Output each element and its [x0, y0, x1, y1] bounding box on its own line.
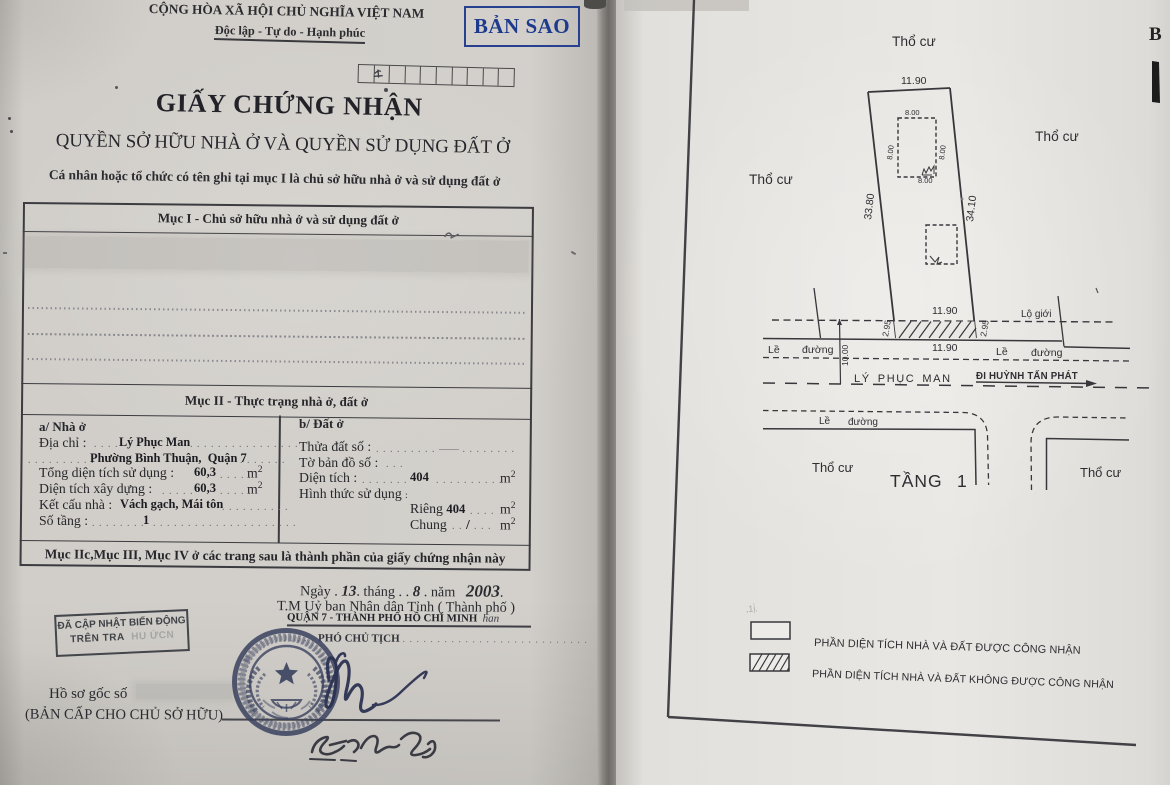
svg-text:đường: đường	[802, 344, 834, 356]
svg-text:Thổ cư: Thổ cư	[812, 460, 854, 475]
svg-text:B: B	[1149, 24, 1162, 45]
svg-text:33.80: 33.80	[862, 193, 877, 221]
svg-text:2.95: 2.95	[880, 319, 893, 337]
svg-text:LÝ PHỤC MAN: LÝ PHỤC MAN	[854, 372, 952, 385]
svg-text:Lộ giới: Lộ giới	[1021, 309, 1051, 320]
svg-text:1: 1	[957, 471, 967, 491]
svg-text:8.00: 8.00	[905, 108, 920, 117]
svg-text:34.10: 34.10	[964, 195, 979, 223]
svg-text:Thổ cư: Thổ cư	[892, 34, 936, 49]
svg-text:11.90: 11.90	[901, 75, 927, 87]
svg-text:8.00: 8.00	[937, 145, 948, 161]
svg-text:Lề: Lề	[819, 415, 831, 427]
svg-text:8.00: 8.00	[918, 176, 933, 185]
svg-text:PHẦN DIỆN TÍCH NHÀ VÀ ĐẤT KHÔN: PHẦN DIỆN TÍCH NHÀ VÀ ĐẤT KHÔNG ĐƯỢC CÔN…	[812, 667, 1114, 691]
svg-text:2.95: 2.95	[978, 319, 991, 337]
svg-text:Thổ cư: Thổ cư	[749, 172, 793, 187]
svg-text:10.00: 10.00	[840, 344, 850, 366]
svg-text:Thổ cư: Thổ cư	[1080, 465, 1122, 480]
svg-text:11.90: 11.90	[932, 342, 958, 354]
svg-text:8.00: 8.00	[885, 145, 896, 161]
svg-text:11.90: 11.90	[932, 305, 958, 317]
svg-text:Thổ cư: Thổ cư	[1035, 129, 1079, 144]
svg-text:Lề: Lề	[768, 344, 780, 356]
svg-text:ĐI HUỲNH TẤN PHÁT: ĐI HUỲNH TẤN PHÁT	[976, 370, 1078, 382]
svg-text:,1ị̀.: ,1ị̀.	[745, 602, 758, 614]
svg-text:Lề: Lề	[996, 346, 1008, 358]
svg-text:TẦNG: TẦNG	[890, 470, 943, 491]
svg-text:đường: đường	[848, 417, 878, 428]
svg-text:đường: đường	[1031, 347, 1063, 359]
svg-text:PHẦN DIỆN TÍCH NHÀ VÀ ĐẤT ĐƯỢ: PHẦN DIỆN TÍCH NHÀ VÀ ĐẤT ĐƯỢC CÔNG NHẬN	[814, 636, 1081, 657]
